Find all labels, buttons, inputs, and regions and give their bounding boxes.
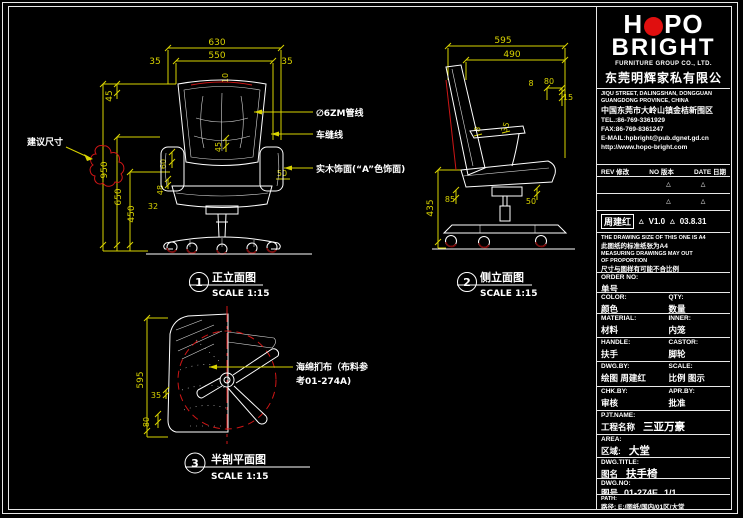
callout-stitch: 车缝线 — [316, 129, 343, 141]
scale-label-en: SCALE: — [669, 363, 727, 371]
chkby-label-cn: 审核 — [601, 398, 669, 408]
qty-label-en: QTY: — [669, 294, 727, 302]
path-label-en: PATH: — [601, 496, 726, 503]
phone: TEL.:86-769-3361929 — [601, 116, 726, 125]
base-leg-lines — [480, 225, 535, 233]
scale-label-cn: 比例 — [669, 373, 686, 383]
caster-red-treads — [167, 248, 276, 254]
aprby-label-cn: 批准 — [669, 398, 727, 408]
rev-mark-icon: △ — [666, 181, 671, 188]
chkby-label-en: CHK.BY: — [601, 388, 669, 396]
no-col-label: NO 版本 — [649, 166, 674, 176]
seat-outline — [172, 186, 272, 208]
field-drawing-no: DWG.NO: 图号01-274E1/1 — [597, 479, 730, 495]
field-material-inner: MATERIAL: INNER: 材料 内笼 — [597, 314, 730, 338]
dimension-ticks — [435, 43, 568, 245]
revision-version: V1.0 — [649, 217, 665, 226]
dno-cn-and-value: 图号01-274E1/1 — [601, 488, 726, 495]
callout-arrowhead — [209, 365, 217, 370]
path-label-cn: 路径: — [601, 504, 616, 509]
dim-8b: 8 — [473, 125, 483, 133]
order-no-label-cn: 单号 — [601, 284, 726, 293]
backrest-inner-line — [452, 69, 473, 166]
front-view-number: 1 — [195, 276, 203, 289]
revision-header: REV 修改 NO 版本 DATE 日期 — [597, 165, 730, 177]
dno-label-cn: 图号 — [601, 488, 618, 495]
address-line2: GUANGDONG PROVINCE, CHINA — [601, 98, 726, 105]
inner-label-en: INNER: — [669, 315, 727, 323]
order-no-label-en: ORDER NO: — [601, 274, 726, 282]
dim-8a: 8 — [528, 79, 533, 88]
dim-80: 80 — [142, 417, 151, 427]
seat-detail-line — [176, 193, 268, 196]
dim-margin-right: 35 — [281, 57, 292, 67]
dwgby-value: 周建红 — [620, 373, 646, 383]
section-view-title: 半剖平面图 — [211, 452, 266, 466]
mesh-dots — [180, 340, 226, 426]
color-label-en: COLOR: — [601, 294, 669, 302]
callout-fabric-line2: 考01-274A) — [296, 375, 351, 387]
field-area: AREA: 区域:大堂 — [597, 435, 730, 458]
company-name-cn: 东莞明辉家私有限公司 — [601, 69, 726, 89]
callout-fabric-line1: 海绵扪布（布料参 — [296, 361, 369, 373]
dno-label-en: DWG.NO: — [601, 480, 726, 488]
dtitle-label-en: DWG.TITLE: — [601, 459, 726, 467]
note-line4: OF PROPORTION — [601, 258, 726, 265]
area-label-cn: 区域: — [601, 446, 621, 456]
pjt-label-cn: 工程名称 — [601, 422, 635, 432]
drawing-no-value: 01-274E — [624, 488, 658, 495]
email: E-MAIL:hpbright@pub.dgnet.gd.cn — [601, 134, 726, 143]
pjt-cn-and-value: 工程名称三亚万豪 — [601, 422, 726, 432]
base-star-plan — [197, 349, 279, 424]
dim-60: 60 — [159, 159, 168, 169]
scale-cn-and-value: 比例 图示 — [669, 373, 727, 383]
aprby-label-en: APR.BY: — [669, 388, 727, 396]
dim-seat-height: 435 — [426, 199, 436, 216]
scale-value: 图示 — [688, 373, 705, 383]
sheet-page: 1/1 — [664, 488, 677, 495]
dim-inner-width: 550 — [208, 51, 225, 61]
rev-mark-icon: △ — [666, 198, 671, 205]
note-line1: THE DRAWING SIZE OF THIS ONE IS A4 — [601, 235, 726, 242]
revision-row-empty-1: △ △ — [597, 177, 730, 194]
note-line5: 尺寸与图样有可能不合比例 — [601, 265, 726, 273]
field-dwgby-scale: DWG.BY: SCALE: 绘图 周建红 比例 图示 — [597, 362, 730, 387]
front-elevation-view: 630 550 35 35 45 950 650 450 60 48 32 10… — [27, 38, 405, 299]
rev-col-label: REV 修改 — [601, 166, 629, 176]
title-block: HPO BRIGHT FURNITURE GROUP CO., LTD. 东莞明… — [596, 7, 730, 509]
dim-50: 50 — [526, 197, 536, 206]
section-view-label: 3 半剖平面图 SCALE 1:15 — [185, 452, 310, 482]
casters — [446, 236, 547, 248]
dim-32: 32 — [148, 202, 158, 211]
casters — [167, 242, 277, 254]
pjt-label-en: PJT.NAME: — [601, 412, 726, 420]
address-cn: 中国东莞市大岭山镇金桔新围区 — [601, 105, 726, 116]
section-view-number: 3 — [191, 457, 199, 470]
dtitle-cn-and-value: 图名扶手椅 — [601, 469, 726, 479]
note-line2: 此图纸的标准纸张为A4 — [601, 242, 726, 251]
address-line1: JIQU STREET, DALINGSHAN, DONGGUAN — [601, 91, 726, 98]
website: http://www.hopo-bright.com — [601, 143, 726, 152]
rev-mark-icon: △ — [639, 218, 644, 225]
handle-label-en: HANDLE: — [601, 339, 669, 347]
field-drawing-title: DWG.TITLE: 图名扶手椅 — [597, 458, 730, 479]
side-elevation-view: 595 490 8 80 15 8 35 435 85 50 — [426, 36, 575, 299]
dim-arm-height: 650 — [114, 188, 124, 205]
side-view-title: 侧立面图 — [480, 270, 524, 284]
armrest-plan-lines — [228, 332, 276, 348]
reviser-name: 周建红 — [601, 214, 634, 229]
date-col-label: DATE 日期 — [694, 166, 726, 176]
side-view-number: 2 — [463, 276, 471, 289]
suggest-arrowhead — [84, 154, 93, 161]
area-value: 大堂 — [629, 445, 650, 457]
callout-tube: ∅6ZM管线 — [316, 107, 363, 119]
qty-label-cn: 数量 — [669, 304, 727, 314]
castor-label-cn: 脚轮 — [669, 349, 727, 359]
dim-overall-depth: 595 — [494, 36, 511, 46]
dwgby-cn-and-value: 绘图 周建红 — [601, 373, 669, 383]
gas-lift-upper — [503, 196, 507, 206]
rev-mark-icon: △ — [701, 181, 706, 188]
revision-row-empty-2: △ △ — [597, 194, 730, 211]
gas-lift-sleeve — [500, 206, 510, 221]
company-address: JIQU STREET, DALINGSHAN, DONGGUAN GUANGD… — [597, 89, 730, 165]
rev-mark-icon: △ — [670, 218, 675, 225]
front-view-title: 正立面图 — [212, 270, 256, 284]
dim-seat-height: 450 — [127, 205, 137, 222]
drawing-sheet: 630 550 35 35 45 950 650 450 60 48 32 10… — [0, 0, 743, 518]
castor-label-en: CASTOR: — [669, 339, 727, 347]
field-handle-castor: HANDLE: CASTOR: 扶手 脚轮 — [597, 338, 730, 362]
side-view-scale: SCALE 1:15 — [480, 289, 537, 299]
project-name-value: 三亚万豪 — [643, 421, 685, 433]
logo-subtitle: FURNITURE GROUP CO., LTD. — [601, 61, 726, 67]
dim-overall-height: 950 — [100, 161, 110, 178]
path-value: E:/图纸/国内/01区/大堂 — [618, 504, 684, 509]
drawing-title-value: 扶手椅 — [626, 468, 658, 479]
callout-wood: 实木饰面(“A”色饰面) — [316, 163, 405, 175]
dim-margin-left: 35 — [149, 57, 160, 67]
path-cn-and-value: 路径: E:/图纸/国内/01区/大堂 — [601, 503, 726, 509]
field-project-name: PJT.NAME: 工程名称三亚万豪 — [597, 411, 730, 435]
dim-15: 15 — [563, 93, 573, 102]
caster-red-treads — [446, 242, 546, 247]
field-color-qty: COLOR: QTY: 颜色 数量 — [597, 293, 730, 314]
gas-lift-column — [216, 214, 228, 237]
color-label-cn: 颜色 — [601, 304, 669, 314]
dim-depth: 595 — [136, 371, 146, 388]
dimension-ticks — [144, 315, 169, 434]
inner-label-cn: 内笼 — [669, 325, 727, 335]
seat-mechanism — [492, 187, 522, 196]
dwgby-label-cn: 绘图 — [601, 373, 618, 383]
revision-row-current: 周建红 △ V1.0 △ 03.8.31 — [597, 211, 730, 233]
note-line3: MEASURING DRAWINGS MAY OUT — [601, 251, 726, 258]
drawing-area: 630 550 35 35 45 950 650 450 60 48 32 10… — [0, 0, 595, 518]
area-label-en: AREA: — [601, 436, 726, 444]
dim-85: 85 — [445, 195, 455, 204]
base-side — [444, 225, 566, 233]
area-cn-and-value: 区域:大堂 — [601, 446, 726, 456]
rev-mark-icon: △ — [701, 198, 706, 205]
front-view-label: 1 正立面图 SCALE 1:15 — [189, 270, 269, 299]
section-view-scale: SCALE 1:15 — [211, 472, 268, 482]
suggest-note: 建议尺寸 — [27, 136, 63, 148]
armrest-section-hatch — [176, 320, 222, 359]
front-view-scale: SCALE 1:15 — [212, 289, 269, 299]
dim-35: 35 — [151, 391, 161, 400]
mesh-texture — [194, 93, 250, 151]
handle-label-cn: 扶手 — [601, 349, 669, 359]
dtitle-label-cn: 图名 — [601, 469, 618, 479]
logo-bright: BRIGHT — [601, 37, 726, 59]
material-label-en: MATERIAL: — [601, 315, 669, 323]
dwgby-label-en: DWG.BY: — [601, 363, 669, 371]
armrest-detail-lines — [165, 153, 279, 186]
company-logo: HPO BRIGHT FURNITURE GROUP CO., LTD. 东莞明… — [597, 7, 730, 89]
dim-overall-width: 630 — [208, 38, 225, 48]
field-path: PATH: 路径: E:/图纸/国内/01区/大堂 — [597, 495, 730, 509]
backrest-outline — [446, 65, 485, 175]
seat-outline — [461, 161, 555, 187]
dim-back-top: 45 — [105, 90, 115, 101]
material-label-cn: 材料 — [601, 325, 669, 335]
field-order-no: ORDER NO: 单号 — [597, 273, 730, 293]
dim-80: 80 — [544, 77, 554, 86]
base-leg-lines — [190, 238, 254, 247]
half-section-plan-view: 595 35 80 海绵扪布（布料参 考01-274A) 3 半剖平面图 SCA… — [136, 306, 369, 482]
revision-date: 03.8.31 — [680, 217, 707, 226]
fax: FAX:86-769-8361247 — [601, 125, 726, 134]
field-chk-apr: CHK.BY: APR.BY: 审核 批准 — [597, 387, 730, 411]
side-view-label: 2 侧立面图 SCALE 1:15 — [457, 270, 537, 299]
dim-seat-depth: 490 — [503, 50, 520, 60]
drawing-note: THE DRAWING SIZE OF THIS ONE IS A4 此图纸的标… — [597, 233, 730, 273]
